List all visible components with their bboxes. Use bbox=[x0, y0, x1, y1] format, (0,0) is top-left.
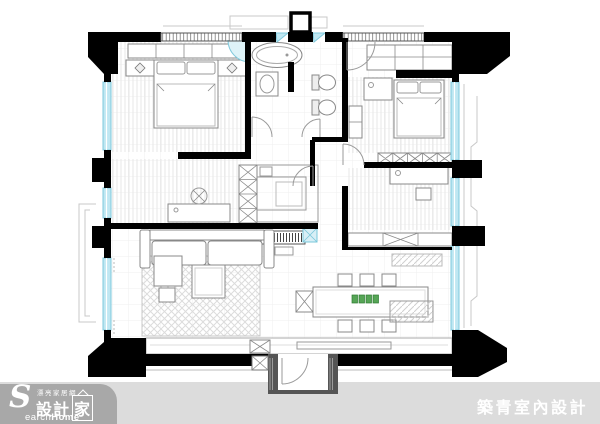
table-runner-icon bbox=[390, 301, 433, 322]
logo-latin-text: earchHome bbox=[25, 412, 80, 423]
nightstand-icon bbox=[126, 60, 154, 76]
corner-wall bbox=[452, 32, 510, 74]
toilet-icon bbox=[312, 75, 336, 90]
desk-icon bbox=[390, 167, 448, 184]
side-table-icon bbox=[154, 256, 182, 286]
coffee-table-icon bbox=[192, 265, 225, 298]
pillar-icon bbox=[92, 226, 111, 248]
pendant-lamp-icon bbox=[392, 254, 442, 266]
floor-plan-page: 漂亮家居網 S 設計家 earchHome 築青室內設計 bbox=[0, 0, 600, 424]
toilet-icon bbox=[312, 100, 336, 115]
wardrobe-x-icon bbox=[239, 165, 257, 223]
desk-icon bbox=[364, 78, 392, 100]
bathtub-icon bbox=[252, 43, 302, 68]
entry-door-icon bbox=[252, 354, 338, 394]
sink-icon bbox=[256, 72, 278, 96]
logo-s-initial: S bbox=[9, 382, 31, 413]
double-bed-icon bbox=[154, 60, 218, 128]
balcony-icon bbox=[146, 338, 452, 354]
nightstand-icon bbox=[218, 60, 246, 76]
corner-wall bbox=[88, 338, 146, 377]
glass-cabinet-icon bbox=[303, 228, 317, 242]
planter-box-icon bbox=[250, 340, 270, 353]
shoe-cabinet-icon bbox=[252, 356, 268, 370]
desk-icon bbox=[168, 204, 230, 222]
closet-icon bbox=[367, 45, 452, 70]
designer-credit: 築青室內設計 bbox=[477, 394, 588, 418]
chair-icon bbox=[416, 188, 431, 200]
louver-window-icon bbox=[343, 33, 424, 41]
corner-wall bbox=[88, 32, 118, 74]
closet-icon bbox=[348, 233, 452, 246]
pillar-icon bbox=[92, 158, 111, 182]
floor-plan bbox=[0, 0, 600, 424]
louver-window-icon bbox=[161, 33, 242, 41]
shaft-icon bbox=[291, 13, 310, 32]
searchome-logo[interactable]: 漂亮家居網 S 設計家 earchHome bbox=[0, 384, 117, 424]
pillar-icon bbox=[452, 160, 482, 178]
pillar-icon bbox=[452, 226, 485, 246]
stool-icon bbox=[159, 288, 175, 302]
double-bed-icon-2 bbox=[394, 80, 444, 138]
corner-wall bbox=[452, 330, 507, 377]
